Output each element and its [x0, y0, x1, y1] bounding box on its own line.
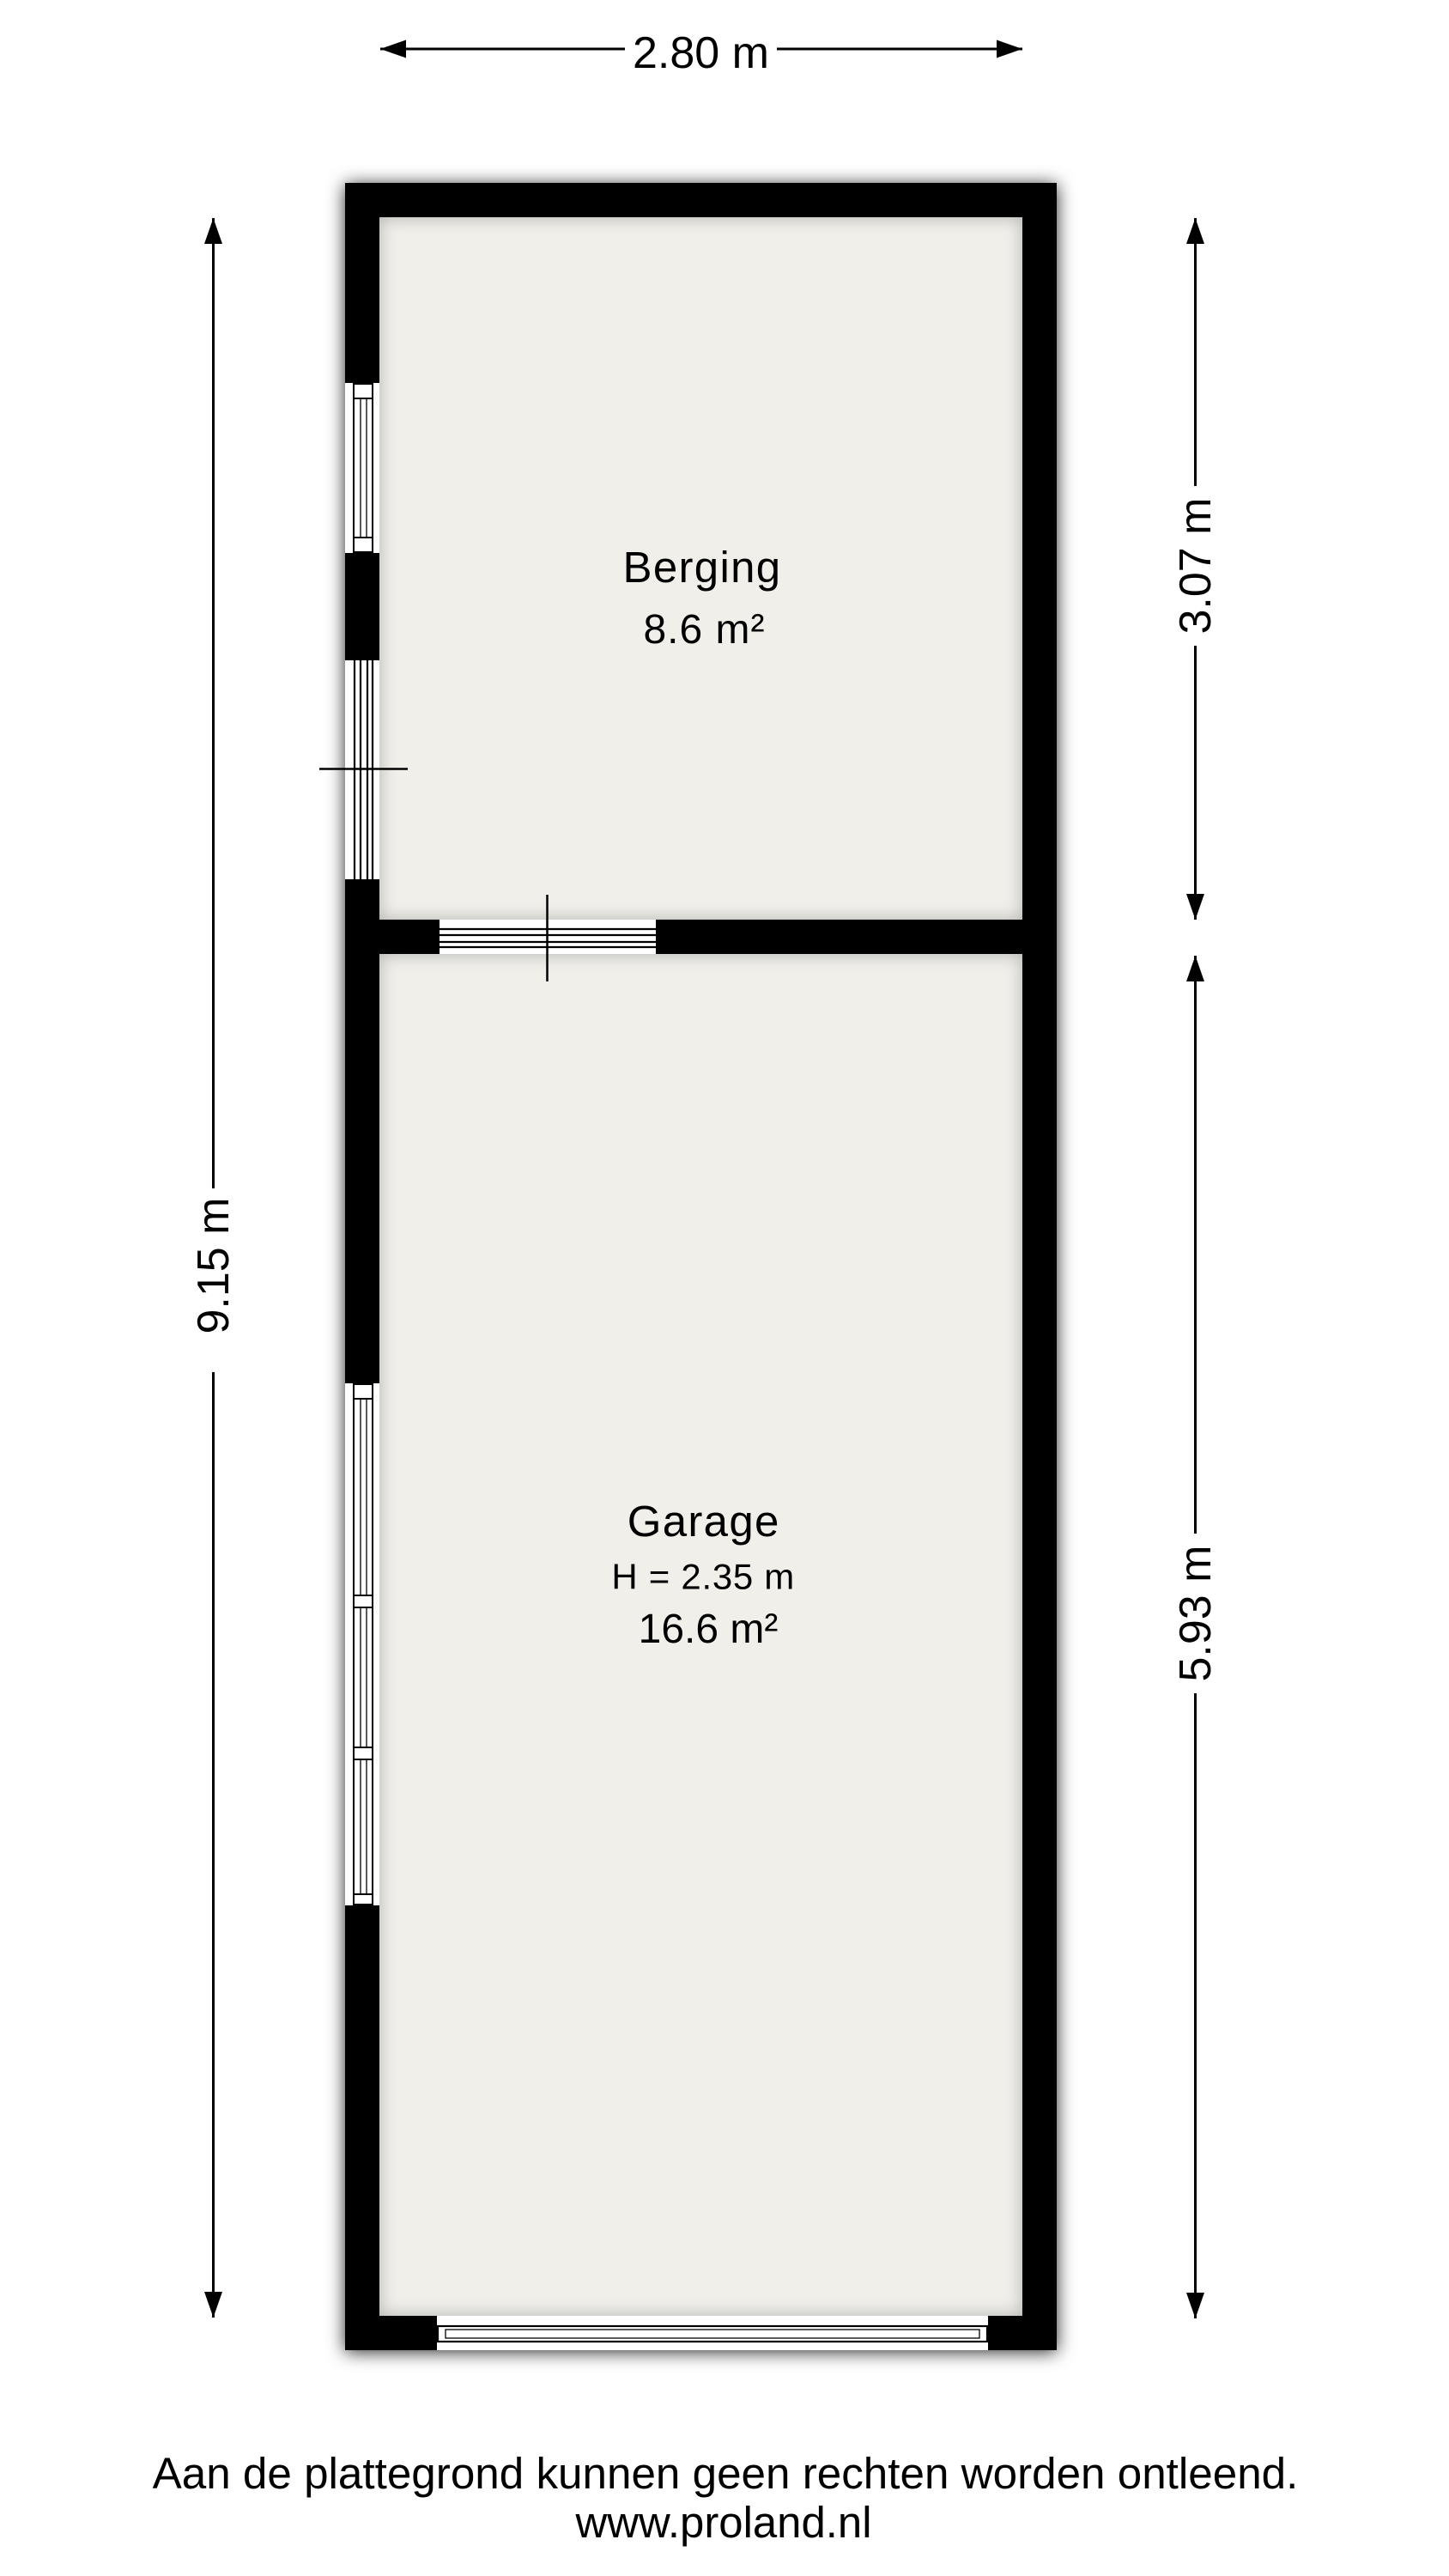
svg-text:Aan de plattegrond kunnen geen: Aan de plattegrond kunnen geen rechten w… [153, 2449, 1299, 2498]
svg-text:www.proland.nl: www.proland.nl [574, 2498, 871, 2547]
svg-text:5.93 m: 5.93 m [1171, 1546, 1221, 1682]
svg-text:Garage: Garage [627, 1497, 780, 1546]
svg-text:3.07 m: 3.07 m [1171, 498, 1221, 635]
svg-text:8.6 m²: 8.6 m² [643, 607, 765, 653]
svg-text:2.80 m: 2.80 m [633, 28, 769, 78]
svg-text:9.15 m: 9.15 m [189, 1198, 239, 1334]
svg-text:16.6 m²: 16.6 m² [639, 1607, 779, 1652]
svg-text:H = 2.35 m: H = 2.35 m [611, 1557, 795, 1597]
svg-text:Berging: Berging [623, 543, 782, 592]
